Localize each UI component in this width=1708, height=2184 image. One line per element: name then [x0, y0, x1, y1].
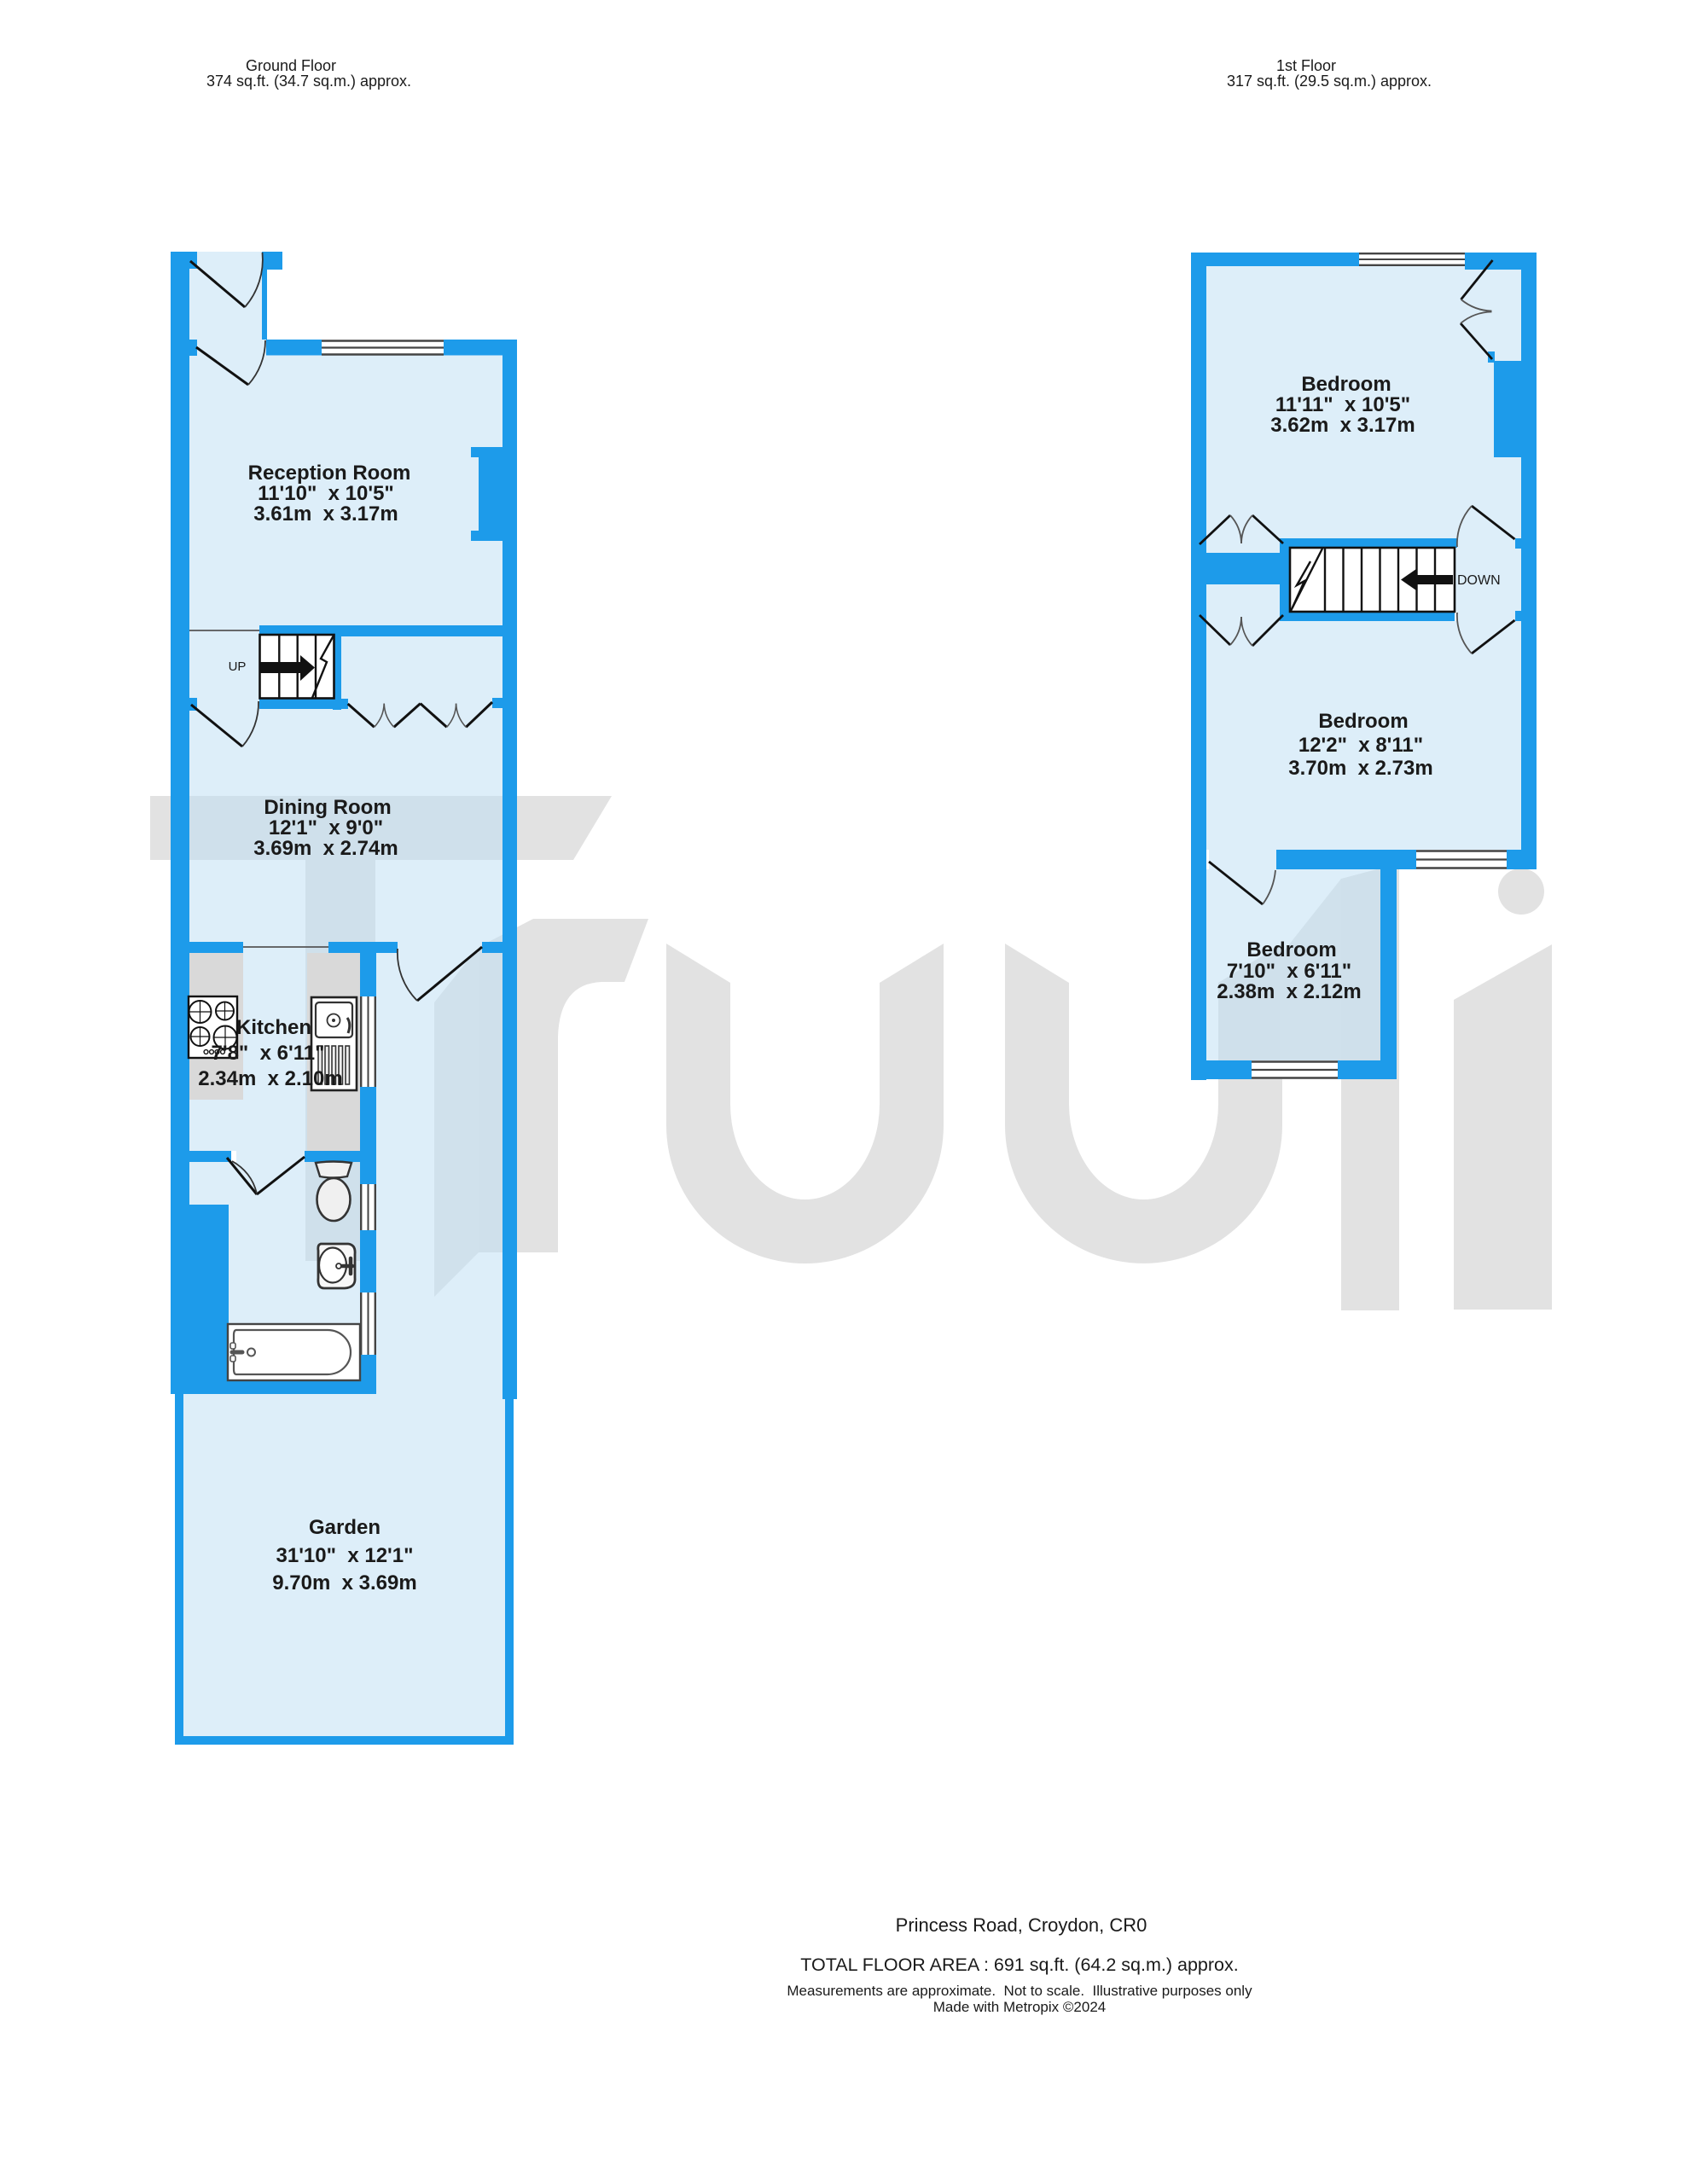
svg-text:DOWN: DOWN [1457, 573, 1501, 588]
svg-text:11'10" x 10'5": 11'10" x 10'5" [258, 482, 394, 505]
svg-text:Made with Metropix ©2024: Made with Metropix ©2024 [933, 1999, 1106, 2015]
svg-text:3.70m x 2.73m: 3.70m x 2.73m [1288, 757, 1432, 780]
svg-text:2.38m x 2.12m: 2.38m x 2.12m [1217, 980, 1361, 1003]
svg-text:Bedroom: Bedroom [1301, 373, 1391, 396]
svg-text:Bedroom: Bedroom [1318, 710, 1408, 733]
svg-text:2.34m x 2.10m: 2.34m x 2.10m [198, 1067, 342, 1090]
svg-text:31'10" x 12'1": 31'10" x 12'1" [276, 1544, 414, 1567]
svg-text:Reception Room: Reception Room [248, 462, 411, 485]
svg-text:1st Floor: 1st Floor [1276, 57, 1336, 74]
svg-text:UP: UP [229, 659, 247, 674]
svg-text:Ground Floor: Ground Floor [246, 57, 336, 74]
svg-text:12'1" x 9'0": 12'1" x 9'0" [269, 816, 383, 839]
svg-text:317 sq.ft. (29.5 sq.m.) approx: 317 sq.ft. (29.5 sq.m.) approx. [1227, 73, 1432, 90]
svg-text:3.62m x 3.17m: 3.62m x 3.17m [1270, 414, 1415, 437]
svg-text:Kitchen: Kitchen [236, 1016, 311, 1039]
svg-text:Measurements are approximate.: Measurements are approximate. Not to sca… [787, 1983, 1252, 1999]
svg-text:11'11" x 10'5": 11'11" x 10'5" [1275, 393, 1410, 416]
svg-text:Garden: Garden [309, 1516, 381, 1539]
svg-text:Dining Room: Dining Room [264, 796, 391, 819]
svg-text:12'2" x 8'11": 12'2" x 8'11" [1298, 734, 1423, 757]
svg-text:7'8" x 6'11": 7'8" x 6'11" [212, 1042, 325, 1065]
svg-text:7'10" x 6'11": 7'10" x 6'11" [1227, 960, 1351, 983]
svg-text:9.70m x 3.69m: 9.70m x 3.69m [272, 1571, 416, 1594]
svg-text:Bedroom: Bedroom [1246, 938, 1336, 961]
svg-text:TOTAL FLOOR AREA : 691 sq.ft.: TOTAL FLOOR AREA : 691 sq.ft. (64.2 sq.m… [800, 1955, 1238, 1975]
svg-text:3.69m x 2.74m: 3.69m x 2.74m [253, 837, 398, 860]
svg-text:374 sq.ft. (34.7 sq.m.) approx: 374 sq.ft. (34.7 sq.m.) approx. [206, 73, 411, 90]
svg-text:Princess Road, Croydon, CR0: Princess Road, Croydon, CR0 [896, 1914, 1147, 1936]
svg-text:3.61m x 3.17m: 3.61m x 3.17m [253, 502, 398, 526]
